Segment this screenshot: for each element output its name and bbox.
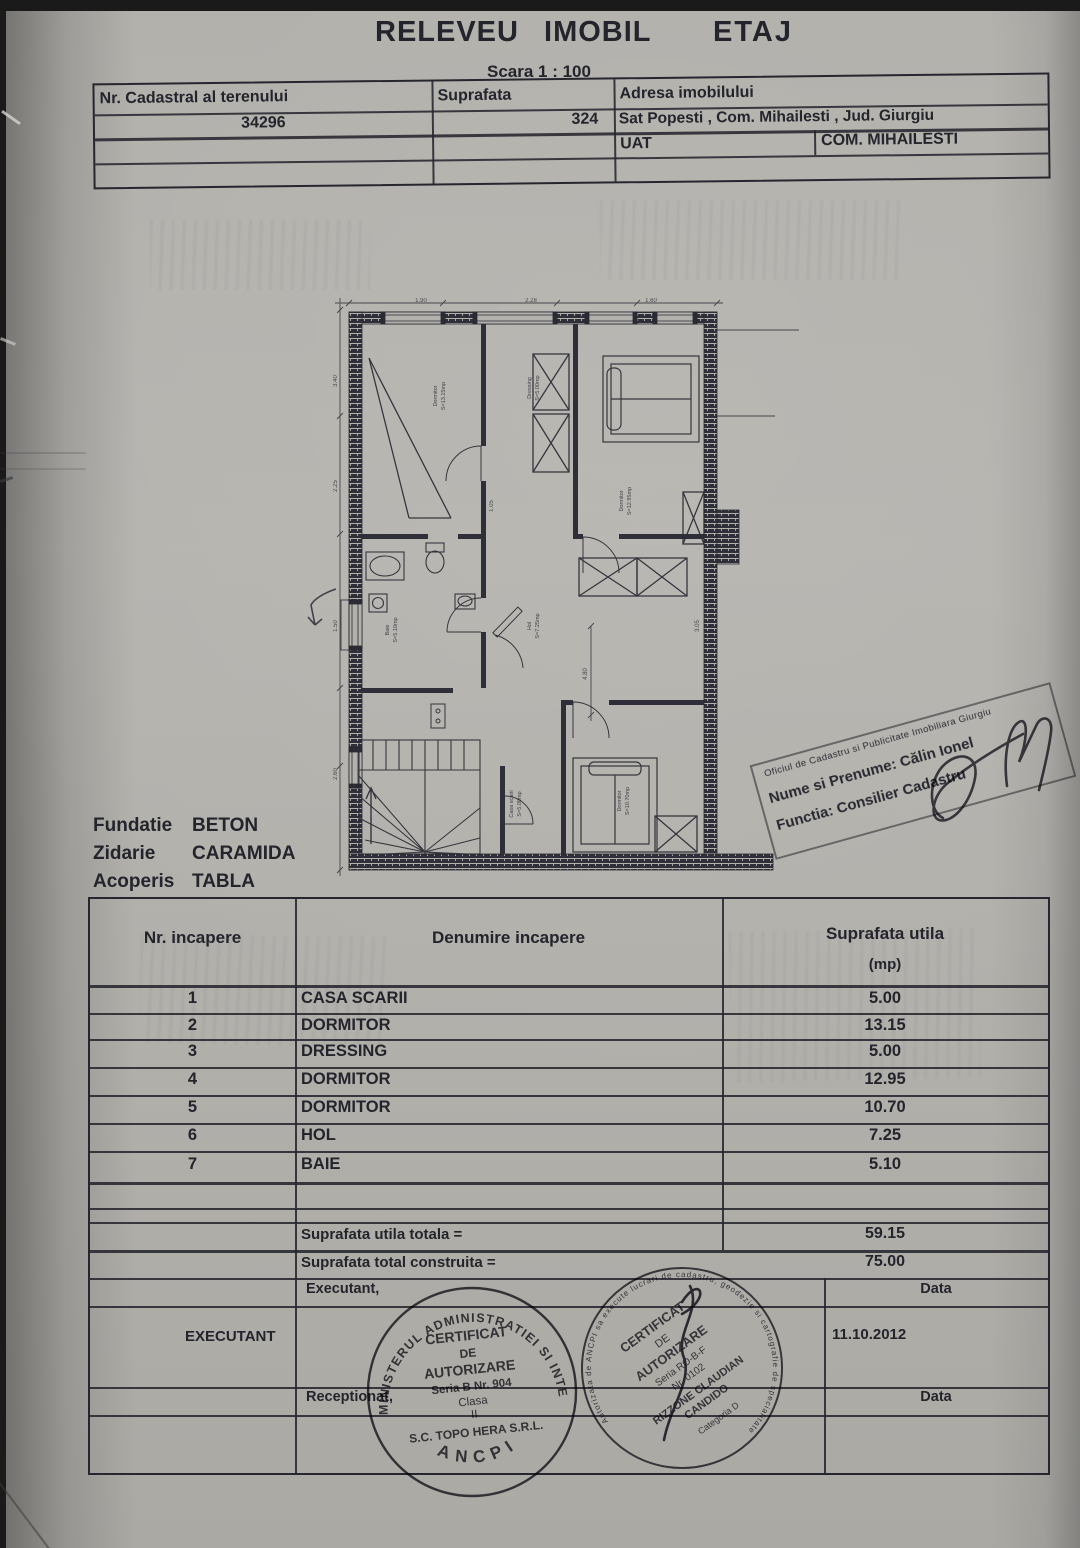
room-area: 13.15 [722, 1016, 1048, 1034]
room-name: DORMITOR [301, 1070, 391, 1088]
stamp-line: II [471, 1409, 479, 1422]
total-utila-value: 59.15 [722, 1225, 1048, 1243]
acoperis-value: TABLA [192, 872, 255, 893]
round-stamp-ministry: MINISTERUL ADMINISTRATIEI SI INTERNELOR … [358, 1278, 586, 1506]
stamp-line: S.C. TOPO HERA S.R.L. [408, 1418, 543, 1446]
room-name: DORMITOR [301, 1098, 391, 1116]
adresa-value: Sat Popesti , Com. Mihailesti , Jud. Giu… [619, 107, 934, 128]
room-area: 5.10 [722, 1155, 1048, 1173]
dim-label: 1.50 [333, 620, 339, 632]
room-label: S=13.15mp [441, 382, 447, 410]
room-label: S=12.95mp [627, 487, 633, 515]
document-title: RELEVEU IMOBIL [375, 17, 652, 49]
room-name: HOL [301, 1126, 336, 1144]
room-name: DRESSING [301, 1042, 387, 1060]
zidarie-label: Zidarie [93, 844, 155, 865]
adresa-header: Adresa imobilului [619, 84, 753, 103]
dim-label: 2.60 [333, 768, 339, 780]
room-area: 5.00 [722, 1042, 1048, 1060]
floor-plan-drawing: Dormitor S=13.15mp Dressing S=5.00mp Dor… [333, 296, 800, 893]
room-nr: 2 [90, 1016, 295, 1034]
executant-name: EXECUTANT [185, 1329, 276, 1346]
uat-value: COM. MIHAILESTI [821, 131, 958, 150]
room-label: S=5.00mp [535, 375, 541, 400]
room-nr: 3 [90, 1042, 295, 1060]
dim-label: 1.05 [489, 500, 495, 512]
room-area: 7.25 [722, 1126, 1048, 1144]
room-label: Hol [527, 622, 533, 630]
fundatie-value: BETON [192, 816, 258, 837]
bleedthrough-noise [150, 220, 370, 290]
document-title-floor: ETAJ [713, 17, 793, 49]
dim-label: 1.60 [645, 298, 657, 304]
parcel-table: Nr. Cadastral al terenului Suprafata Adr… [92, 72, 1050, 189]
cadastral-header: Nr. Cadastral al terenului [100, 88, 289, 108]
dim-label: 4.80 [583, 668, 589, 680]
acoperis-label: Acoperis [93, 872, 174, 893]
margin-line [0, 452, 86, 454]
room-area: 10.70 [722, 1098, 1048, 1116]
nr-incapere-header: Nr. incapere [90, 929, 295, 948]
suprafata-utila-header: Suprafata utila [722, 925, 1048, 944]
total-construita-label: Suprafata total construita = [301, 1255, 496, 1272]
cadastral-value: 34296 [95, 112, 432, 133]
zidarie-value: CARAMIDA [192, 844, 295, 865]
data-label-bottom: Data [824, 1390, 1048, 1406]
margin-line [0, 468, 86, 470]
room-name: CASA SCARII [301, 989, 408, 1007]
room-area: 5.00 [722, 989, 1048, 1007]
room-label: Dormitor [619, 490, 625, 511]
room-label: S=5.00mp [517, 791, 523, 816]
room-label: Dormitor [433, 385, 439, 406]
room-nr: 5 [90, 1098, 295, 1116]
room-label: Casa scarii [509, 790, 515, 817]
room-nr: 6 [90, 1126, 295, 1144]
date-value: 11.10.2012 [832, 1327, 906, 1344]
room-name: BAIE [301, 1155, 340, 1173]
data-label-top: Data [824, 1282, 1048, 1298]
fundatie-label: Fundatie [93, 816, 172, 837]
dim-label: 3.40 [333, 375, 339, 387]
dim-label: 1.90 [415, 298, 427, 304]
stamp-line: DE [459, 1345, 477, 1361]
scanned-document: RELEVEU IMOBIL ETAJ Scara 1 : 100 Nr. Ca… [0, 0, 1080, 1548]
room-nr: 4 [90, 1070, 295, 1088]
denumire-header: Denumire incapere [295, 929, 722, 948]
dim-label: 2.28 [525, 298, 537, 304]
room-area: 12.95 [722, 1070, 1048, 1088]
room-label: Baie [385, 624, 391, 635]
room-label: Dormitor [617, 790, 623, 811]
suprafata-header: Suprafata [437, 87, 511, 105]
room-label: Dressing [527, 377, 533, 399]
stamp-line: Clasa [458, 1394, 489, 1409]
uat-label: UAT [620, 135, 652, 153]
room-label: S=7.25mp [535, 613, 541, 638]
total-utila-label: Suprafata utila totala = [301, 1227, 462, 1244]
round-stamp-authorization: Autorizata de ANCPI sa execute lucrari d… [572, 1258, 792, 1478]
bleedthrough-noise [600, 200, 900, 280]
dim-label: 3.05 [695, 620, 701, 632]
room-label: S=5.10mp [393, 617, 399, 642]
room-label: S=10.70mp [625, 787, 631, 815]
room-name: DORMITOR [301, 1016, 391, 1034]
mp-unit-header: (mp) [722, 957, 1048, 974]
room-nr: 1 [90, 989, 295, 1007]
room-nr: 7 [90, 1155, 295, 1173]
dim-label: 2.25 [333, 480, 339, 492]
